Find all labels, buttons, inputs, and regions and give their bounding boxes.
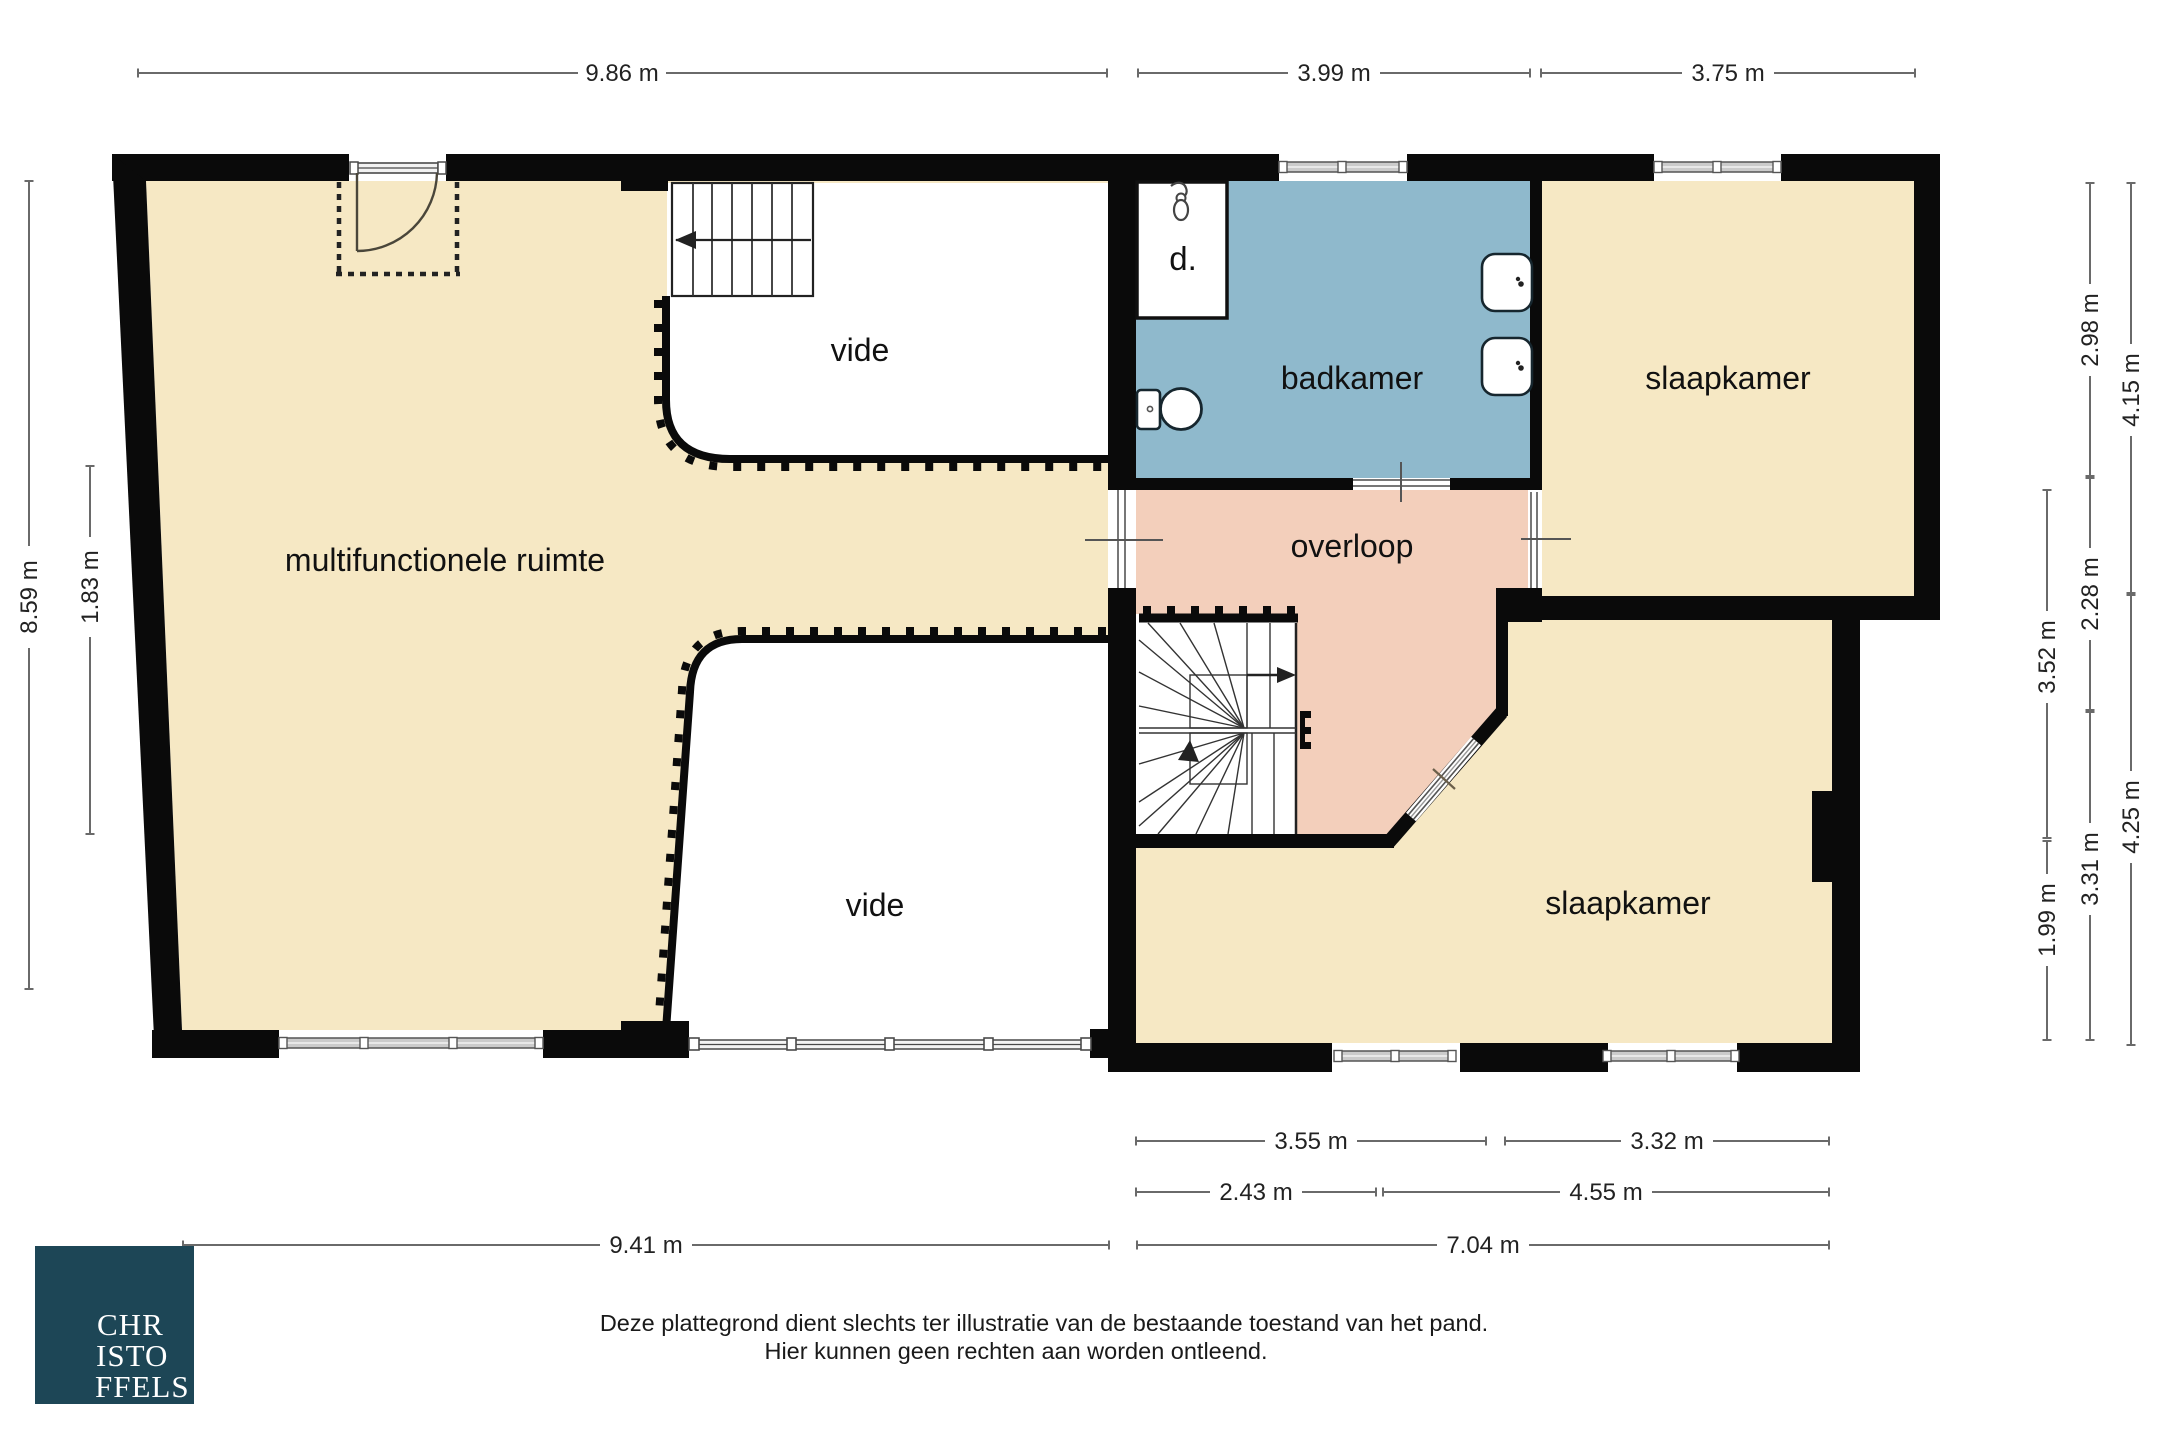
svg-text:3.99 m: 3.99 m bbox=[1297, 60, 1370, 87]
svg-text:9.41 m: 9.41 m bbox=[609, 1232, 682, 1259]
svg-text:CHR: CHR bbox=[97, 1307, 164, 1342]
svg-text:multifunctionele ruimte: multifunctionele ruimte bbox=[285, 542, 605, 578]
svg-text:badkamer: badkamer bbox=[1281, 360, 1424, 396]
svg-text:3.75 m: 3.75 m bbox=[1691, 60, 1764, 87]
svg-text:vide: vide bbox=[831, 332, 890, 368]
svg-text:Deze plattegrond dient slechts: Deze plattegrond dient slechts ter illus… bbox=[600, 1310, 1488, 1336]
svg-text:4.55 m: 4.55 m bbox=[1569, 1179, 1642, 1206]
svg-text:Hier kunnen geen rechten aan w: Hier kunnen geen rechten aan worden ontl… bbox=[764, 1338, 1267, 1364]
svg-text:3.32 m: 3.32 m bbox=[1630, 1128, 1703, 1155]
svg-text:d.: d. bbox=[1169, 240, 1197, 277]
svg-text:ISTO: ISTO bbox=[96, 1338, 168, 1373]
svg-text:slaapkamer: slaapkamer bbox=[1645, 360, 1811, 396]
svg-text:9.86 m: 9.86 m bbox=[585, 60, 658, 87]
svg-text:3.52 m: 3.52 m bbox=[2034, 620, 2061, 693]
svg-text:3.55 m: 3.55 m bbox=[1274, 1128, 1347, 1155]
svg-text:1.83 m: 1.83 m bbox=[77, 550, 104, 623]
svg-text:2.28 m: 2.28 m bbox=[2077, 557, 2104, 630]
svg-text:1.99 m: 1.99 m bbox=[2034, 883, 2061, 956]
svg-text:7.04 m: 7.04 m bbox=[1446, 1232, 1519, 1259]
svg-text:FFELS: FFELS bbox=[95, 1369, 190, 1404]
svg-text:2.98 m: 2.98 m bbox=[2077, 293, 2104, 366]
svg-text:4.25 m: 4.25 m bbox=[2118, 780, 2145, 853]
svg-text:slaapkamer: slaapkamer bbox=[1545, 885, 1711, 921]
svg-text:overloop: overloop bbox=[1291, 528, 1414, 564]
svg-text:vide: vide bbox=[846, 887, 905, 923]
svg-text:2.43 m: 2.43 m bbox=[1219, 1179, 1292, 1206]
svg-text:8.59 m: 8.59 m bbox=[16, 560, 43, 633]
svg-text:4.15 m: 4.15 m bbox=[2118, 353, 2145, 426]
svg-text:3.31 m: 3.31 m bbox=[2077, 832, 2104, 905]
